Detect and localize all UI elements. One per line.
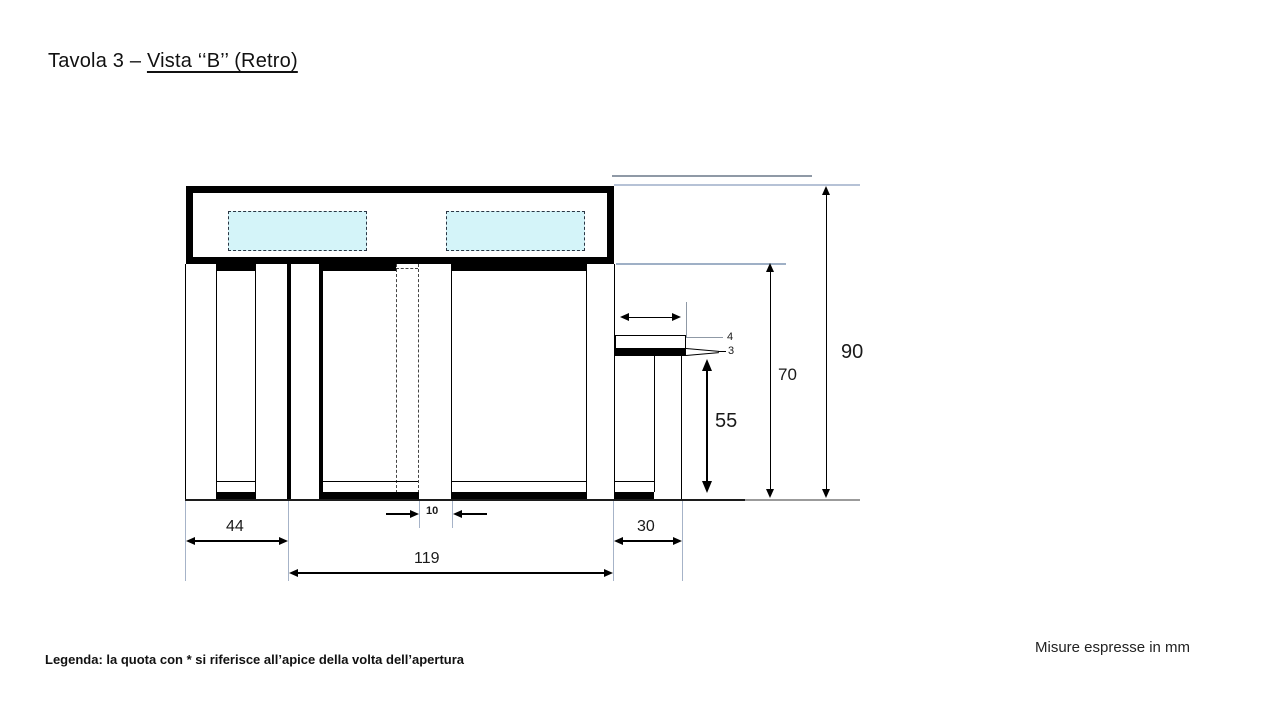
- arrowhead-left: [289, 569, 298, 577]
- arrowhead-right: [604, 569, 613, 577]
- legend-note: Legenda: la quota con * si riferisce all…: [45, 652, 464, 667]
- column-edge-line: [586, 264, 587, 499]
- plinth-line: [323, 481, 418, 482]
- dim-44-arrow-line: [194, 540, 280, 542]
- plinth-line: [216, 481, 255, 482]
- dim-slab-thickness-label: 4: [727, 331, 733, 343]
- lintel-bar: [216, 264, 255, 271]
- dim-119-arrow-line: [297, 572, 605, 574]
- extension-line-slab: [686, 302, 687, 337]
- hidden-edge-dashed-line: [418, 264, 419, 493]
- title-view-name: Vista ‘‘B’’ (Retro): [147, 50, 298, 72]
- pillar-thick-line: [319, 264, 323, 499]
- slab-black-band: [615, 348, 686, 356]
- base-bar: [323, 492, 419, 499]
- column-edge-line: [185, 264, 186, 499]
- arrowhead-down: [702, 481, 712, 493]
- window-left: [228, 211, 367, 251]
- right-wall-edge-line: [614, 264, 615, 499]
- dim-90-line: [826, 191, 827, 491]
- dim-left-span-label: 44: [226, 518, 244, 536]
- leader-line-3: [686, 352, 719, 356]
- dim-opening-width-label: 10: [426, 505, 438, 517]
- technical-drawing-page: Tavola 3 – Vista ‘‘B’’ (Retro) 4: [0, 0, 1280, 720]
- base-bar: [451, 492, 586, 499]
- dim-band-thickness-label: 3: [728, 345, 734, 357]
- arrowhead-up: [766, 263, 774, 272]
- dim-wall-height-label: 55: [715, 410, 737, 433]
- slab-width-arrow-line: [627, 317, 677, 318]
- column-edge-line: [255, 264, 256, 499]
- arrowhead-up: [822, 186, 830, 195]
- hidden-edge-dashed-line: [396, 268, 418, 269]
- dim-10-arrow-line: [462, 513, 487, 515]
- dim-55-line: [706, 366, 708, 487]
- plinth-line: [615, 481, 654, 482]
- arrowhead-right: [410, 510, 419, 518]
- window-right: [446, 211, 585, 251]
- arrowhead-right: [279, 537, 288, 545]
- dim-center-span-label: 119: [414, 550, 440, 568]
- dim-front-height-label: 70: [778, 365, 797, 385]
- arrowhead-up: [702, 359, 712, 371]
- arrowhead-left: [620, 313, 629, 321]
- wall-inner-line: [654, 356, 655, 492]
- dim-10-arrow-line: [386, 513, 410, 515]
- units-note: Misure espresse in mm: [1035, 639, 1190, 656]
- title-prefix: Tavola 3 –: [48, 50, 147, 72]
- leader-line-3: [718, 351, 726, 352]
- arrowhead-down: [766, 489, 774, 498]
- ground-line: [185, 499, 745, 501]
- arrowhead-right: [673, 537, 682, 545]
- extension-line: [682, 501, 683, 581]
- slab-outline: [615, 335, 686, 349]
- opening-edge-line: [451, 264, 452, 499]
- arrowhead-down: [822, 489, 830, 498]
- wall-edge-line: [681, 356, 682, 499]
- ground-line-gray: [745, 499, 860, 501]
- leader-line-4: [686, 337, 723, 338]
- extension-line-short: [419, 501, 420, 528]
- arrowhead-right: [672, 313, 681, 321]
- dim-30-arrow-line: [622, 540, 674, 542]
- lintel-bar: [451, 264, 587, 271]
- dim-total-height-label: 90: [841, 341, 863, 364]
- roof-reference-line: [612, 175, 812, 177]
- base-bar: [216, 492, 255, 499]
- column-edge-line: [216, 264, 217, 499]
- plinth-line: [451, 481, 586, 482]
- extension-line-mid: [616, 263, 786, 265]
- dim-70-line: [770, 267, 771, 492]
- dim-right-span-label: 30: [637, 518, 655, 536]
- pillar-thick-line: [287, 264, 291, 499]
- lintel-bar: [323, 264, 396, 271]
- base-bar: [615, 492, 654, 499]
- arrowhead-left: [453, 510, 462, 518]
- arrowhead-left: [614, 537, 623, 545]
- arrowhead-left: [186, 537, 195, 545]
- leader-line-3: [686, 348, 719, 352]
- page-title: Tavola 3 – Vista ‘‘B’’ (Retro): [48, 50, 298, 73]
- hidden-edge-dashed-line: [396, 264, 397, 493]
